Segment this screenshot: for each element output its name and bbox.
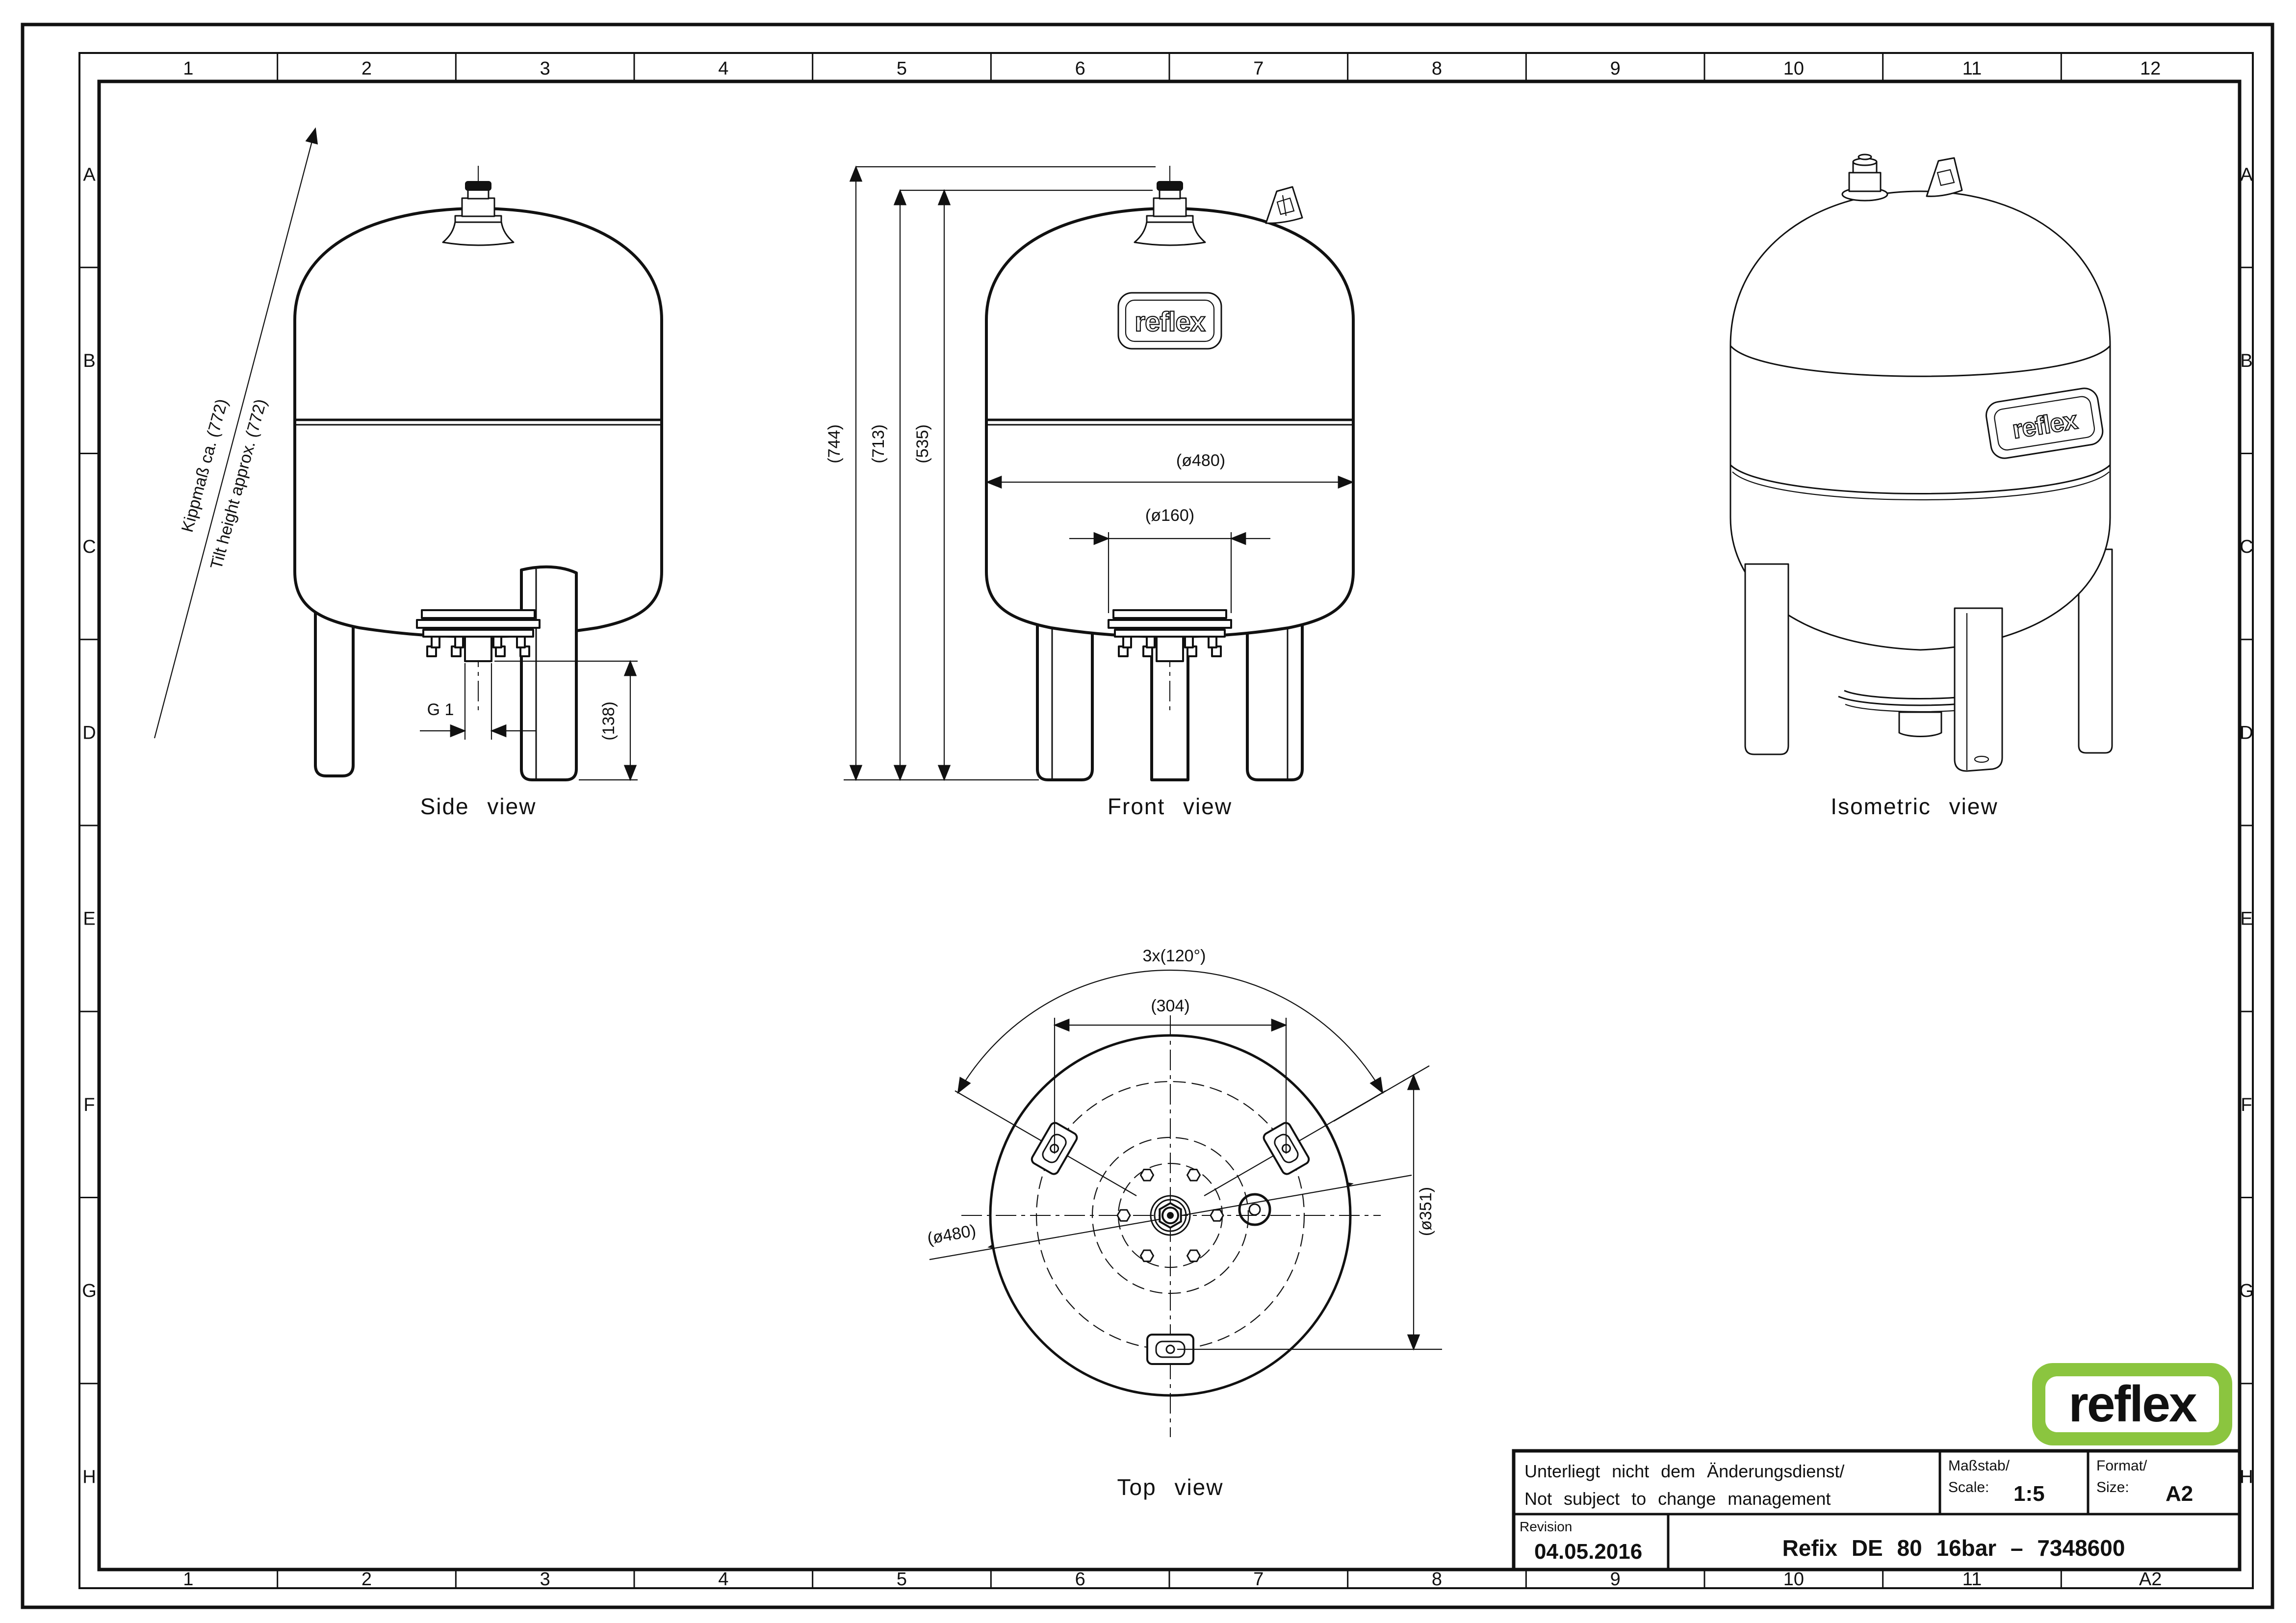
zone-right-D: D [2240, 722, 2253, 743]
zone-left-E: E [83, 909, 95, 929]
revision-date: 04.05.2016 [1534, 1540, 1642, 1564]
isometric-view: reflex Isometric view [1730, 155, 2112, 819]
zone-left-H: H [82, 1467, 96, 1487]
zone-left-F: F [83, 1095, 95, 1115]
zone-bottom-A2: A2 [2139, 1569, 2162, 1590]
zone-left-C: C [82, 537, 96, 557]
front-vessel-logo-plate: reflex [1118, 293, 1221, 349]
iso-valve [1842, 155, 1887, 201]
zone-top-6: 6 [1075, 58, 1085, 79]
zone-top-1: 1 [183, 58, 193, 79]
zone-bottom-8: 8 [1432, 1569, 1442, 1590]
zone-top-9: 9 [1610, 58, 1621, 79]
zone-right-A: A [2240, 165, 2253, 185]
zone-left-G: G [82, 1281, 97, 1301]
front-dome-tag [1266, 187, 1302, 223]
zone-bottom-9: 9 [1610, 1569, 1621, 1590]
zone-top-4: 4 [718, 58, 728, 79]
side-view-caption: Side view [420, 794, 537, 819]
front-height-shell: (713) [869, 424, 888, 463]
top-feet-pitch-label: 3x(120°) [1143, 947, 1206, 965]
top-feet-spacing-label: (304) [1151, 997, 1189, 1015]
zone-left-B: B [83, 351, 95, 371]
side-view: Kippmaß ca. (772) Tilt height approx. (7… [155, 129, 662, 819]
drawing-title: Refix DE 80 16bar – 7348600 [1782, 1535, 2125, 1561]
zone-right-B: B [2240, 351, 2252, 371]
zone-top-11: 11 [1962, 58, 1982, 79]
front-diameter-label: (ø480) [1176, 451, 1225, 470]
title-block: Unterliegt nicht dem Änderungsdienst/ No… [1514, 1451, 2240, 1570]
top-view-caption: Top view [1117, 1474, 1224, 1500]
zone-top-10: 10 [1783, 58, 1804, 79]
zone-right-H: H [2240, 1467, 2253, 1487]
zone-left-A: A [83, 165, 96, 185]
zone-right-C: C [2240, 537, 2253, 557]
zone-right-E: E [2240, 909, 2252, 929]
format-label-de: Format/ [2096, 1458, 2147, 1474]
title-note-line2: Not subject to change management [1524, 1489, 1831, 1509]
zone-bottom-3: 3 [540, 1569, 550, 1590]
zone-top-5: 5 [897, 58, 907, 79]
zone-bottom-10: 10 [1783, 1569, 1804, 1590]
zone-left-D: D [82, 722, 96, 743]
zone-bottom-11: 11 [1962, 1569, 1982, 1590]
revision-label: Revision [1520, 1519, 1572, 1534]
zone-bottom-7: 7 [1253, 1569, 1264, 1590]
scale-label-de: Maßstab/ [1948, 1458, 2010, 1474]
front-vessel-logo-text: reflex [1135, 306, 1205, 337]
zone-bottom-4: 4 [718, 1569, 728, 1590]
top-view: 3x(120°) (304) (ø480) (ø351) Top view [926, 947, 1442, 1500]
zone-top-12: 12 [2140, 58, 2161, 79]
side-leg-height-label: (138) [599, 701, 618, 740]
top-side-port [1239, 1194, 1270, 1225]
side-thread-label: G 1 [427, 700, 454, 719]
title-note-line1: Unterliegt nicht dem Änderungsdienst/ [1524, 1461, 1844, 1481]
zone-right-G: G [2239, 1281, 2254, 1301]
iso-front-leg [1955, 608, 2002, 771]
front-view-caption: Front view [1108, 794, 1232, 819]
zone-bottom-2: 2 [361, 1569, 372, 1590]
front-height-tangent: (535) [913, 424, 932, 463]
iso-left-leg [1745, 564, 1788, 754]
format-label-en: Size: [2096, 1479, 2129, 1495]
scale-value: 1:5 [2013, 1482, 2045, 1506]
logo-text: reflex [2068, 1376, 2197, 1433]
zone-right-F: F [2241, 1095, 2252, 1115]
zone-bottom-6: 6 [1075, 1569, 1085, 1590]
drawing-sheet: 1234567891011121234567891011A2ABCDEFGHAB… [0, 0, 2296, 1623]
iso-dome-tag [1927, 158, 1962, 196]
isometric-view-caption: Isometric view [1831, 794, 1998, 819]
zone-bottom-5: 5 [897, 1569, 907, 1590]
front-height-total: (744) [825, 424, 844, 463]
zone-top-2: 2 [361, 58, 372, 79]
top-diameter-label: (ø480) [926, 1221, 977, 1248]
side-front-leg [521, 567, 576, 780]
front-view: reflex (744) (713) (535) (ø480) (ø160) F… [825, 166, 1353, 819]
top-foot-circle-label: (ø351) [1417, 1187, 1435, 1236]
zone-top-7: 7 [1253, 58, 1264, 79]
company-logo: reflex [2032, 1363, 2232, 1445]
format-value: A2 [2166, 1482, 2193, 1506]
zone-bottom-1: 1 [183, 1569, 193, 1590]
zone-top-8: 8 [1432, 58, 1442, 79]
drawing-canvas: 1234567891011121234567891011A2ABCDEFGHAB… [0, 0, 2296, 1623]
scale-label-en: Scale: [1948, 1479, 1989, 1495]
zone-top-3: 3 [540, 58, 550, 79]
front-flange-diameter-label: (ø160) [1145, 506, 1194, 525]
